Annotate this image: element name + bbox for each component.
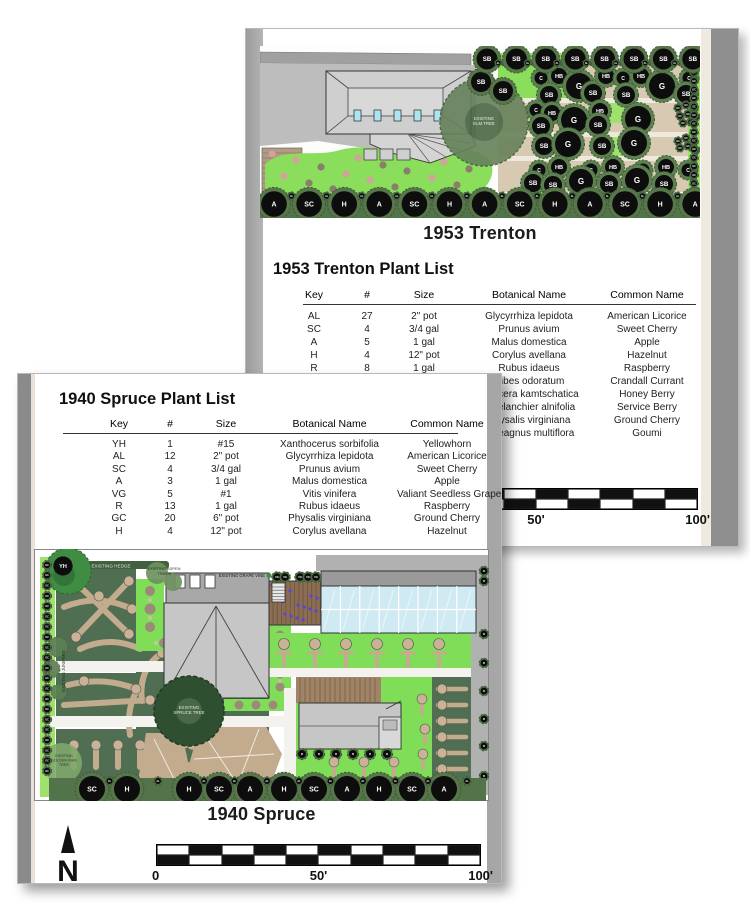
svg-text:VG: VG xyxy=(314,575,318,579)
svg-text:GC: GC xyxy=(45,749,49,752)
svg-text:AL: AL xyxy=(325,195,329,198)
column-header: # xyxy=(150,418,190,430)
trenton-plan-drawing: CHBGSBSBHBCHBGSBCSBCHBGSBHBSBGSBGSBGCHBC… xyxy=(260,46,700,218)
plant-marker-GC: GC xyxy=(690,162,699,171)
yellowhorn-tree: YH xyxy=(45,549,91,594)
plant-marker-GC: GC xyxy=(690,94,699,103)
scale-cell xyxy=(600,499,632,509)
svg-text:H: H xyxy=(376,787,381,794)
svg-text:AL: AL xyxy=(571,195,575,198)
svg-text:GC: GC xyxy=(692,80,696,83)
north-label: N xyxy=(48,859,88,885)
svg-text:HB: HB xyxy=(637,74,645,80)
plant-marker-GC: GC xyxy=(682,101,690,109)
svg-text:GC: GC xyxy=(692,123,696,126)
plant-cell: Ground Cherry xyxy=(598,414,696,427)
svg-text:AL: AL xyxy=(501,195,505,198)
north-arrow: N xyxy=(48,824,88,885)
plant-cell: Goumi xyxy=(598,427,696,440)
column-header: Common Name xyxy=(598,289,696,301)
svg-text:AL: AL xyxy=(156,780,160,783)
scale-cell xyxy=(665,499,697,509)
svg-text:A: A xyxy=(247,787,252,794)
scale-cell xyxy=(633,489,665,499)
plant-cell: Hazelnut xyxy=(397,526,497,538)
plant-marker-AL: AL xyxy=(583,59,590,66)
plant-marker-GC: GC xyxy=(42,643,51,652)
plant-marker-AL: AL xyxy=(524,59,531,66)
plant-row: YH1#15Xanthocerus sorbifoliaYellowhorn xyxy=(88,439,497,451)
svg-text:R: R xyxy=(483,774,485,778)
plant-marker-AL: AL xyxy=(671,59,678,66)
svg-text:SB: SB xyxy=(537,123,546,130)
page-edge xyxy=(701,29,711,546)
svg-text:GC: GC xyxy=(45,574,49,577)
plant-cell: 5 xyxy=(150,489,190,501)
column-header: # xyxy=(346,289,388,301)
plant-cell: 2" pot xyxy=(388,310,460,323)
plant-cell: 4 xyxy=(346,349,388,362)
greenhouse xyxy=(321,571,476,633)
plant-cell: 2" pot xyxy=(190,451,262,463)
plant-marker-GC: GC xyxy=(690,153,699,162)
spruce-scale-bar: 050'100' xyxy=(156,844,481,866)
plant-marker-GC: GC xyxy=(42,694,51,703)
plant-cell: Crandall Currant xyxy=(598,375,696,388)
plant-marker-GC: GC xyxy=(42,684,51,693)
svg-text:SB: SB xyxy=(598,143,607,150)
svg-text:A: A xyxy=(693,202,698,209)
plant-marker-R: R xyxy=(479,686,489,696)
plant-marker-AL: AL xyxy=(295,777,304,786)
plant-marker-GC: GC xyxy=(679,119,687,127)
plant-cell: 1 gal xyxy=(388,336,460,349)
svg-text:GC: GC xyxy=(45,667,49,670)
scale-cell xyxy=(504,499,536,509)
svg-text:SB: SB xyxy=(660,181,669,188)
plant-cell: Sweet Cherry xyxy=(598,323,696,336)
svg-text:GC: GC xyxy=(45,677,49,680)
scale-cell xyxy=(568,499,600,509)
svg-text:R: R xyxy=(369,752,371,756)
plant-marker-A: A xyxy=(427,772,461,801)
plant-marker-GC: GC xyxy=(690,77,699,86)
plant-row: AL272" potGlycyrrhiza lepidotaAmerican L… xyxy=(282,310,696,323)
svg-text:GC: GC xyxy=(45,564,49,567)
scale-cell xyxy=(318,845,350,855)
svg-text:SC: SC xyxy=(214,787,224,794)
plant-marker-G: G xyxy=(618,127,651,160)
svg-text:H: H xyxy=(447,202,452,209)
svg-text:C: C xyxy=(539,76,543,82)
scale-cell xyxy=(568,489,600,499)
plant-marker-VG: VG xyxy=(311,572,322,583)
plant-cell: 6" pot xyxy=(190,513,262,525)
svg-text:GC: GC xyxy=(45,636,49,639)
scale-cell xyxy=(448,845,480,855)
plant-marker-YH: YH xyxy=(54,557,73,576)
svg-text:HB: HB xyxy=(548,111,556,117)
svg-text:R: R xyxy=(483,661,485,665)
plant-marker-SB: SB xyxy=(473,46,501,73)
svg-text:AL: AL xyxy=(465,195,469,198)
svg-text:AL: AL xyxy=(361,780,365,783)
scale-cell xyxy=(286,845,318,855)
column-header: Botanical Name xyxy=(262,418,397,430)
plant-marker-GC: GC xyxy=(690,136,699,145)
svg-text:AL: AL xyxy=(265,780,269,783)
plant-cell: 12" pot xyxy=(388,349,460,362)
svg-text:SB: SB xyxy=(483,56,492,63)
svg-text:A: A xyxy=(482,202,487,209)
scale-cell xyxy=(504,489,536,499)
plant-marker-SB: SB xyxy=(532,46,560,73)
plant-marker-SB: SB xyxy=(590,134,615,159)
svg-text:A: A xyxy=(271,202,276,209)
svg-text:R: R xyxy=(483,569,485,573)
plant-cell: Service Berry xyxy=(598,401,696,414)
svg-text:GC: GC xyxy=(45,657,49,660)
svg-text:GC: GC xyxy=(692,88,696,91)
svg-text:AL: AL xyxy=(536,195,540,198)
plant-marker-R: R xyxy=(479,576,489,586)
plant-cell: 1 gal xyxy=(190,476,262,488)
svg-text:HB: HB xyxy=(555,165,563,171)
plant-row: AL122" potGlycyrrhiza lepidotaAmerican L… xyxy=(88,451,497,463)
plant-cell: 5 xyxy=(346,336,388,349)
plant-marker-GC: GC xyxy=(42,622,51,631)
plant-cell: AL xyxy=(88,451,150,463)
existing-spruce-tree: EXISTINGSPRUCE TREE xyxy=(154,676,224,746)
plant-cell: Hazelnut xyxy=(598,349,696,362)
svg-text:SB: SB xyxy=(605,181,614,188)
plant-row: A31 galMalus domesticaApple xyxy=(88,476,497,488)
svg-text:GC: GC xyxy=(45,687,49,690)
svg-text:HB: HB xyxy=(602,74,610,80)
svg-text:GC: GC xyxy=(692,182,696,185)
column-header: Key xyxy=(88,418,150,430)
plant-marker-R: R xyxy=(313,748,324,759)
plant-marker-GC: GC xyxy=(690,128,699,137)
svg-text:SB: SB xyxy=(499,88,508,95)
plant-marker-AL: AL xyxy=(612,59,619,66)
svg-text:GC: GC xyxy=(692,131,696,134)
plant-row: H412" potCorylus avellanaHazelnut xyxy=(88,526,497,538)
plant-marker-H: H xyxy=(267,772,301,801)
plant-cell: Xanthocerus sorbifolia xyxy=(262,439,397,451)
svg-text:G: G xyxy=(634,176,640,185)
plant-cell: 1 gal xyxy=(190,501,262,513)
scale-cell xyxy=(351,845,383,855)
svg-text:GC: GC xyxy=(45,718,49,721)
svg-text:VG: VG xyxy=(275,575,279,579)
plant-cell: #15 xyxy=(190,439,262,451)
svg-text:G: G xyxy=(631,139,637,148)
scale-cell xyxy=(536,489,568,499)
scale-label: 50' xyxy=(310,868,328,883)
plant-marker-AL: AL xyxy=(642,59,649,66)
plant-marker-AL: AL xyxy=(105,777,114,786)
svg-text:AL: AL xyxy=(233,780,237,783)
spruce-list-heading: 1940 Spruce Plant List xyxy=(59,390,235,409)
plant-marker-GC: GC xyxy=(674,104,682,112)
svg-text:R: R xyxy=(335,752,337,756)
plant-cell: VG xyxy=(88,489,150,501)
svg-text:AL: AL xyxy=(202,780,206,783)
plant-cell: Rubus idaeus xyxy=(262,501,397,513)
svg-text:GC: GC xyxy=(45,615,49,618)
svg-text:SB: SB xyxy=(545,92,554,99)
plant-marker-SB: SB xyxy=(649,46,677,73)
plant-marker-GC: GC xyxy=(42,633,51,642)
scale-cell xyxy=(286,855,318,865)
scale-cell xyxy=(415,855,447,865)
plant-cell: Honey Berry xyxy=(598,388,696,401)
plant-cell: Apple xyxy=(397,476,497,488)
svg-text:GC: GC xyxy=(45,626,49,629)
svg-text:H: H xyxy=(124,787,129,794)
svg-text:SC: SC xyxy=(309,787,319,794)
plant-row: SC43/4 galPrunus aviumSweet Cherry xyxy=(282,323,696,336)
plant-marker-AL: AL xyxy=(463,777,472,786)
svg-text:GC: GC xyxy=(692,140,696,143)
plant-marker-AL: AL xyxy=(154,777,163,786)
plant-marker-AL: AL xyxy=(424,777,433,786)
plant-marker-GC: GC xyxy=(42,736,51,745)
svg-text:G: G xyxy=(635,115,641,124)
plant-marker-VG: VG xyxy=(280,572,291,583)
plant-marker-AL: AL xyxy=(553,59,560,66)
svg-text:GC: GC xyxy=(678,147,682,150)
plant-marker-SB: SB xyxy=(561,46,589,73)
scale-label: 100' xyxy=(468,868,493,883)
svg-text:SB: SB xyxy=(540,143,549,150)
plant-marker-GC: GC xyxy=(690,85,699,94)
svg-text:SC: SC xyxy=(304,202,314,209)
plant-cell: 4 xyxy=(150,526,190,538)
plant-cell: 3/4 gal xyxy=(190,464,262,476)
plant-row: A51 galMalus domesticaApple xyxy=(282,336,696,349)
spruce-plan-title: 1940 Spruce xyxy=(34,804,489,825)
svg-text:SC: SC xyxy=(410,202,420,209)
svg-text:GC: GC xyxy=(45,770,49,773)
plant-cell: A xyxy=(282,336,346,349)
scale-cell xyxy=(157,855,189,865)
trenton-list-heading: 1953 Trenton Plant List xyxy=(273,260,454,279)
svg-text:AL: AL xyxy=(297,780,301,783)
svg-text:AL: AL xyxy=(641,195,645,198)
plant-cell: Raspberry xyxy=(397,501,497,513)
spruce-page: 1940 Spruce Plant List Key#SizeBotanical… xyxy=(17,373,502,884)
plant-cell: Prunus avium xyxy=(262,464,397,476)
spruce-plan-drawing: EXISTING HEDGERRRRRREXISTING GRAPE VINEV… xyxy=(34,549,489,801)
svg-text:HB: HB xyxy=(555,74,563,80)
svg-text:H: H xyxy=(552,202,557,209)
plant-row: VG5#1Vitis viniferaValiant Seedless Grap… xyxy=(88,489,497,501)
svg-text:VG: VG xyxy=(298,575,302,579)
plant-cell: SC xyxy=(282,323,346,336)
svg-text:GC: GC xyxy=(692,174,696,177)
plant-marker-AL: AL xyxy=(391,777,400,786)
svg-text:R: R xyxy=(483,579,485,583)
plant-marker-GC: GC xyxy=(690,170,699,179)
plant-marker-GC: GC xyxy=(682,134,690,142)
svg-text:AL: AL xyxy=(108,780,112,783)
plant-cell: Malus domestica xyxy=(262,476,397,488)
plant-row: R131 galRubus idaeusRaspberry xyxy=(88,501,497,513)
plant-cell: AL xyxy=(282,310,346,323)
plant-cell: Corylus avellana xyxy=(262,526,397,538)
scale-cell xyxy=(665,489,697,499)
plant-marker-H: H xyxy=(172,772,206,801)
plant-row: H412" potCorylus avellanaHazelnut xyxy=(282,349,696,362)
plant-cell: 13 xyxy=(150,501,190,513)
plant-marker-GC: GC xyxy=(42,746,51,755)
plant-marker-GC: GC xyxy=(42,560,51,569)
svg-text:C: C xyxy=(534,108,538,114)
plant-cell: Vitis vinifera xyxy=(262,489,397,501)
plant-cell: Prunus avium xyxy=(460,323,598,336)
plant-row: GC206" potPhysalis virginianaGround Cher… xyxy=(88,513,497,525)
svg-text:R: R xyxy=(483,744,485,748)
plant-marker-SC: SC xyxy=(297,772,331,801)
svg-text:SC: SC xyxy=(515,202,525,209)
table-rule xyxy=(63,433,458,434)
scale-cell xyxy=(222,845,254,855)
scale-cell xyxy=(351,855,383,865)
svg-text:AL: AL xyxy=(465,780,469,783)
column-header: Size xyxy=(190,418,262,430)
svg-text:H: H xyxy=(342,202,347,209)
scale-cell xyxy=(254,845,286,855)
plant-marker-A: A xyxy=(233,772,267,801)
svg-text:G: G xyxy=(578,177,584,186)
plant-cell: 20 xyxy=(150,513,190,525)
plant-cell: Physalis virginiana xyxy=(262,513,397,525)
table-rule xyxy=(303,304,696,305)
plant-marker-GC: GC xyxy=(690,119,699,128)
plant-cell: Glycyrrhiza lepidota xyxy=(460,310,598,323)
plant-cell: R xyxy=(88,501,150,513)
svg-text:R: R xyxy=(352,752,354,756)
plant-marker-SB: SB xyxy=(502,46,530,73)
svg-text:GC: GC xyxy=(681,122,685,125)
svg-text:A: A xyxy=(344,787,349,794)
svg-text:R: R xyxy=(386,752,388,756)
plant-marker-AL: AL xyxy=(359,777,368,786)
plant-marker-GC: GC xyxy=(42,766,51,775)
scale-cell xyxy=(448,855,480,865)
svg-text:GC: GC xyxy=(692,97,696,100)
svg-text:SB: SB xyxy=(682,91,691,98)
scale-cell xyxy=(536,499,568,509)
plant-cell: #1 xyxy=(190,489,262,501)
svg-text:SB: SB xyxy=(571,56,580,63)
plant-marker-GC: GC xyxy=(676,144,684,152)
svg-text:GC: GC xyxy=(692,165,696,168)
plant-cell: Glycyrrhiza lepidota xyxy=(262,451,397,463)
plant-marker-SB: SB xyxy=(591,46,619,73)
svg-text:AL: AL xyxy=(606,195,610,198)
plant-marker-SC: SC xyxy=(395,772,429,801)
plant-cell: 4 xyxy=(346,323,388,336)
plant-cell: SC xyxy=(88,464,150,476)
svg-text:GC: GC xyxy=(692,148,696,151)
svg-text:SC: SC xyxy=(407,787,417,794)
svg-text:R: R xyxy=(301,752,303,756)
plant-marker-SC: SC xyxy=(75,772,109,801)
svg-text:SC: SC xyxy=(87,787,97,794)
scale-cell xyxy=(383,855,415,865)
scale-cell xyxy=(222,855,254,865)
plant-marker-SC: SC xyxy=(202,772,236,801)
plant-marker-R: R xyxy=(479,741,489,751)
plant-marker-A: A xyxy=(330,772,364,801)
plant-marker-GC: GC xyxy=(42,725,51,734)
svg-text:SB: SB xyxy=(630,56,639,63)
plant-cell: Valiant Seedless Grape xyxy=(397,489,497,501)
plant-row: SC43/4 galPrunus aviumSweet Cherry xyxy=(88,464,497,476)
plant-cell: 12 xyxy=(150,451,190,463)
plant-marker-GC: GC xyxy=(42,612,51,621)
svg-text:GC: GC xyxy=(678,115,682,118)
svg-text:YH: YH xyxy=(59,564,67,570)
plant-marker-R: R xyxy=(479,714,489,724)
svg-text:AL: AL xyxy=(395,195,399,198)
svg-text:GC: GC xyxy=(45,595,49,598)
scale-label: 100' xyxy=(685,512,710,527)
svg-text:SB: SB xyxy=(541,56,550,63)
plant-marker-GC: GC xyxy=(42,663,51,672)
svg-text:C: C xyxy=(621,76,625,82)
svg-text:A: A xyxy=(587,202,592,209)
plant-marker-R: R xyxy=(296,748,307,759)
svg-text:GC: GC xyxy=(692,157,696,160)
column-header: Common Name xyxy=(397,418,497,430)
plant-marker-R: R xyxy=(347,748,358,759)
svg-text:GC: GC xyxy=(684,104,688,107)
north-arrow-icon xyxy=(54,824,82,854)
scale-label: 0 xyxy=(152,868,159,883)
svg-text:AL: AL xyxy=(360,195,364,198)
annotation-label: EXISTINGELM TREE xyxy=(473,116,495,126)
svg-text:SB: SB xyxy=(622,92,631,99)
plant-cell: 4 xyxy=(150,464,190,476)
svg-text:AL: AL xyxy=(430,195,434,198)
svg-text:VG: VG xyxy=(306,575,310,579)
scale-cell xyxy=(600,489,632,499)
svg-text:VG: VG xyxy=(283,575,287,579)
plant-cell: H xyxy=(88,526,150,538)
plant-marker-GC: GC xyxy=(42,602,51,611)
plant-marker-H: H xyxy=(362,772,396,801)
plant-marker-AL: AL xyxy=(230,777,239,786)
plant-cell: American Licorice xyxy=(397,451,497,463)
plant-marker-GC: GC xyxy=(42,705,51,714)
svg-text:GC: GC xyxy=(45,739,49,742)
plant-marker-AL: AL xyxy=(495,59,502,66)
plant-marker-GC: GC xyxy=(42,715,51,724)
svg-text:GC: GC xyxy=(45,698,49,701)
plant-cell: H xyxy=(282,349,346,362)
plant-marker-GC: GC xyxy=(42,581,51,590)
svg-text:EXISTING JUNIPERS: EXISTING JUNIPERS xyxy=(61,650,66,692)
plant-cell: Ground Cherry xyxy=(397,513,497,525)
plant-marker-H: H xyxy=(110,772,144,801)
svg-text:GC: GC xyxy=(692,114,696,117)
svg-text:H: H xyxy=(186,787,191,794)
svg-text:GC: GC xyxy=(676,140,680,143)
